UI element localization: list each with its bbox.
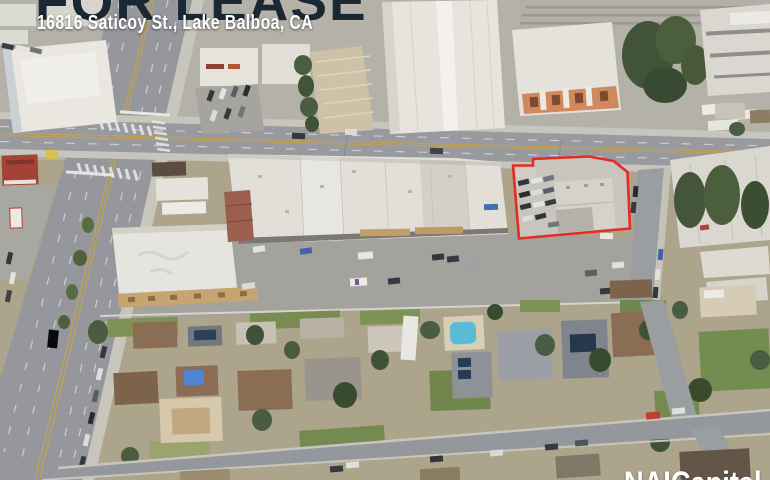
- nai-capital-logo: NAICapital: [624, 465, 762, 480]
- flyer: FOR LEASE 16816 Saticoy St., Lake Balboa…: [0, 0, 770, 480]
- aerial-photo: [0, 0, 770, 480]
- haze-overlay: [0, 0, 770, 480]
